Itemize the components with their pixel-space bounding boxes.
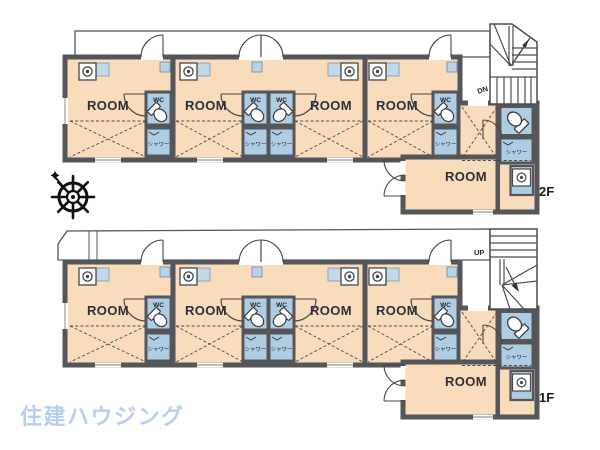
floor-tag-2f: 2F [539, 184, 554, 199]
floor-2f: DN 2F [62, 24, 554, 214]
floor-1f: UP 1F [58, 229, 554, 419]
stair-direction-label: DN [476, 84, 489, 96]
staircase-1f [490, 229, 537, 309]
stair-direction-label: UP [474, 248, 484, 257]
compass-icon [51, 171, 94, 218]
floor-tag-1f: 1F [539, 390, 554, 405]
floor-plan-page: WC WC シャワー [0, 0, 600, 450]
staircase-2f [490, 24, 537, 104]
north-star-icon [51, 171, 60, 180]
floor-plan-image: WC WC シャワー [0, 0, 600, 450]
company-logo: 住建ハウジング [20, 404, 185, 429]
